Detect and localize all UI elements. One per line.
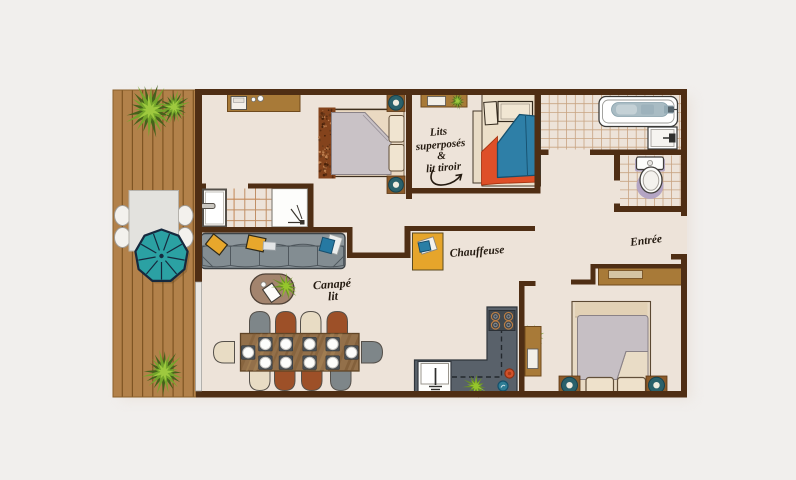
svg-text:lit: lit: [328, 289, 340, 304]
svg-text:&: &: [437, 150, 447, 163]
svg-text:Lits: Lits: [428, 125, 447, 139]
